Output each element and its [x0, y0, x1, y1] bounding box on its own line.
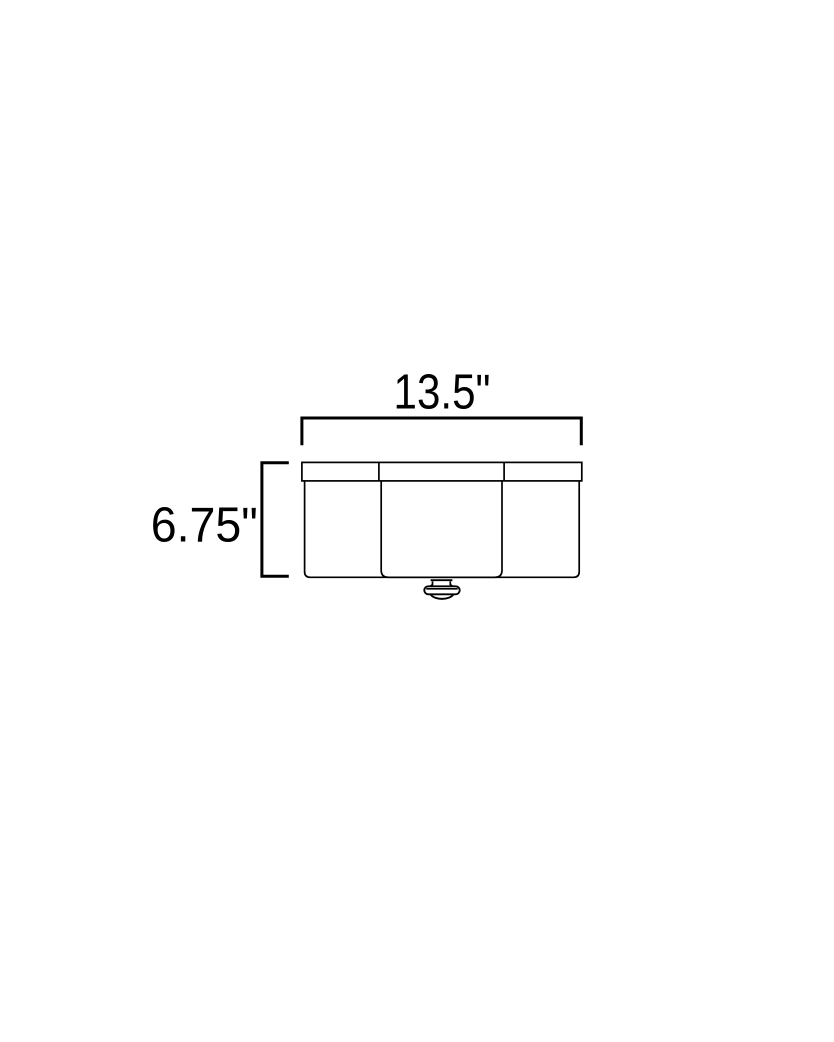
svg-text:6.75": 6.75" — [151, 498, 258, 553]
svg-text:13.5": 13.5" — [394, 364, 491, 419]
